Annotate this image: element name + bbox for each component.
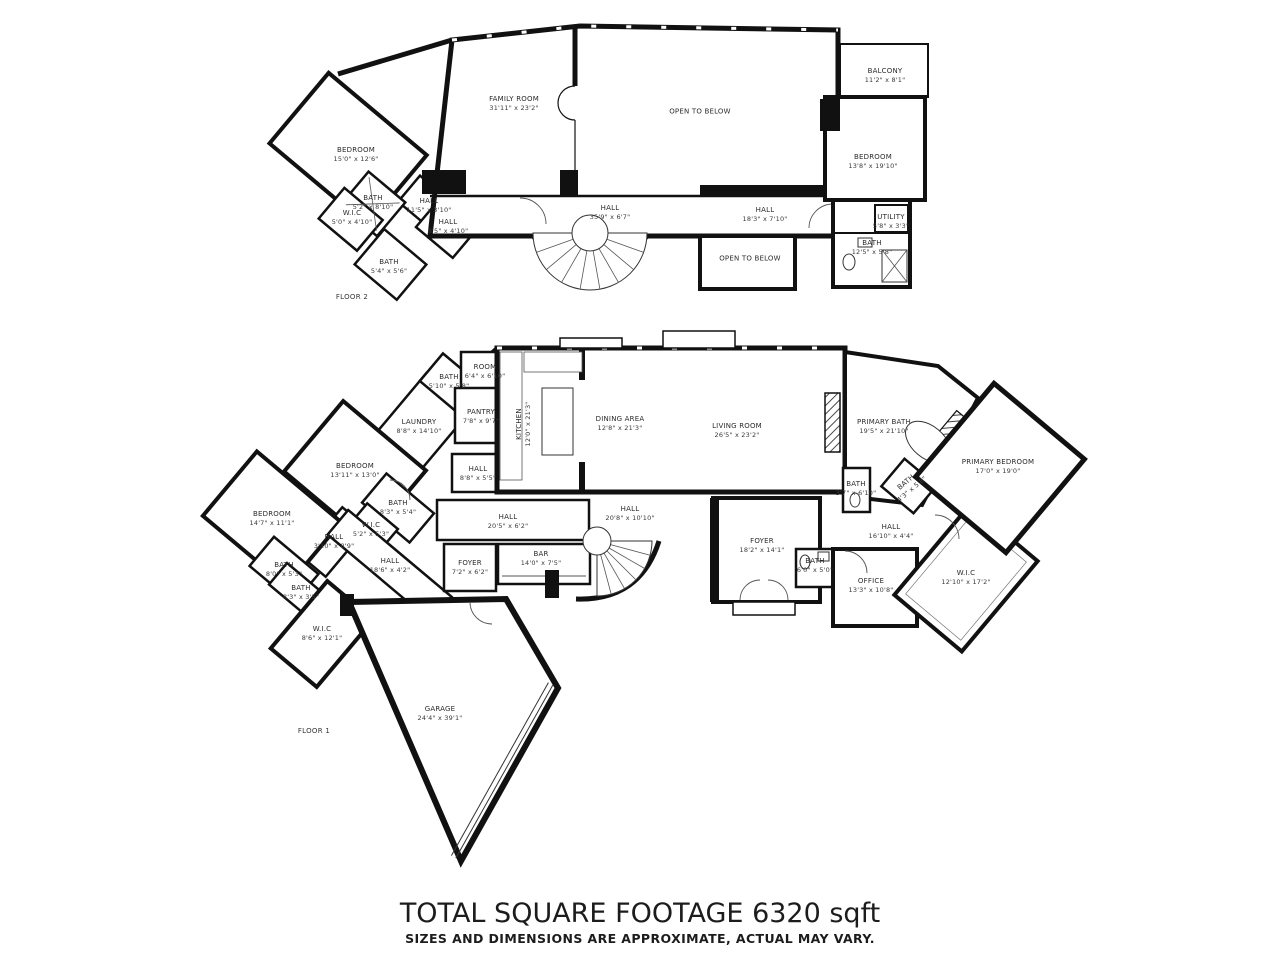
floor-2-caption: FLOOR 2 — [336, 293, 368, 301]
floorplan-page: FAMILY ROOM31'11" x 23'2"OPEN TO BELOWBA… — [0, 0, 1280, 960]
total-square-footage-title: TOTAL SQUARE FOOTAGE 6320 sqft — [0, 898, 1280, 929]
floor-2-walls — [245, 26, 928, 310]
floor-1-caption: FLOOR 1 — [298, 727, 330, 735]
floor-plan-drawing — [0, 0, 1280, 960]
floor-1-walls — [203, 331, 1085, 861]
dimensions-disclaimer: SIZES AND DIMENSIONS ARE APPROXIMATE, AC… — [0, 931, 1280, 946]
